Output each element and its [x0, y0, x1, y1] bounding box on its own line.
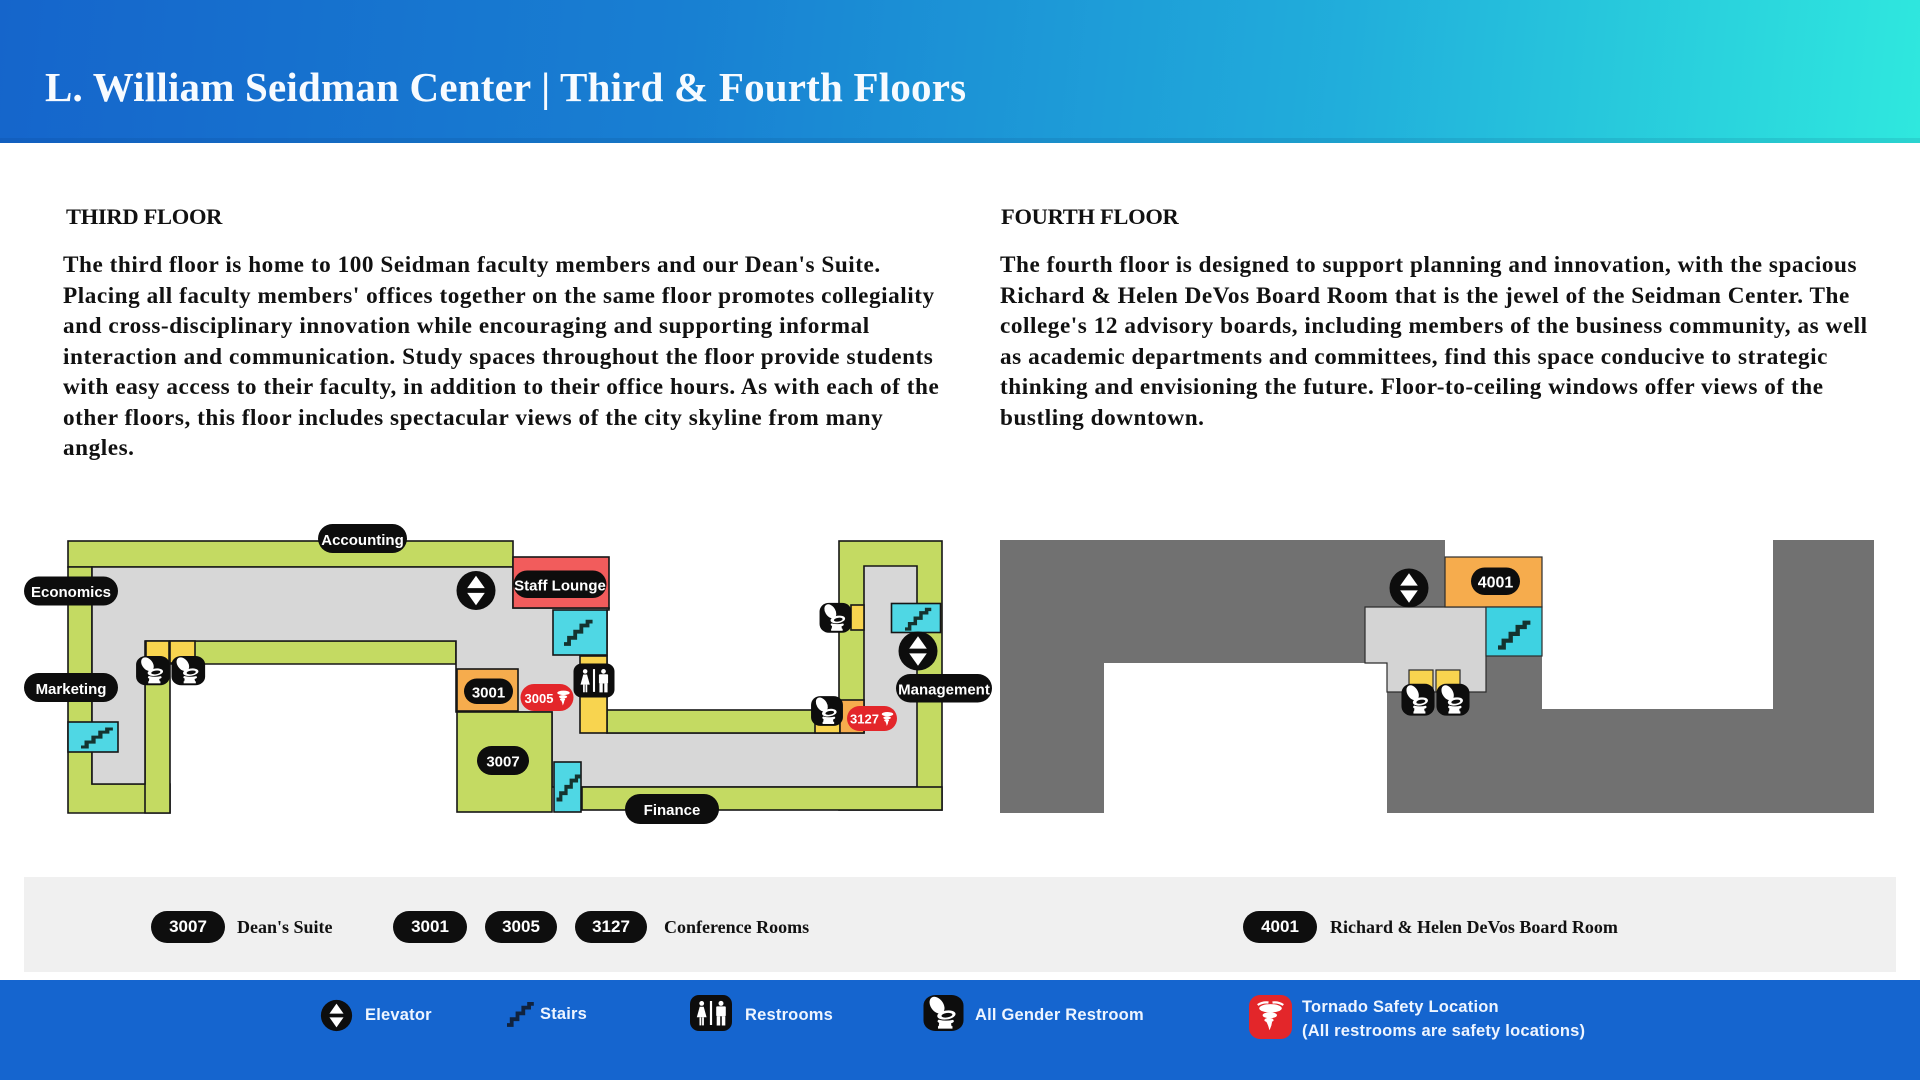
svg-text:3007: 3007 — [486, 754, 519, 771]
svg-text:3001: 3001 — [472, 685, 505, 702]
svg-text:Management: Management — [898, 682, 990, 699]
svg-text:3005: 3005 — [525, 691, 554, 706]
svg-text:Finance: Finance — [644, 802, 701, 819]
svg-text:Staff Lounge: Staff Lounge — [514, 578, 606, 595]
svg-text:3127: 3127 — [850, 712, 879, 727]
svg-text:Economics: Economics — [31, 584, 111, 601]
svg-text:Marketing: Marketing — [36, 681, 107, 698]
svg-text:4001: 4001 — [1478, 575, 1514, 592]
svg-text:Accounting: Accounting — [321, 532, 404, 549]
